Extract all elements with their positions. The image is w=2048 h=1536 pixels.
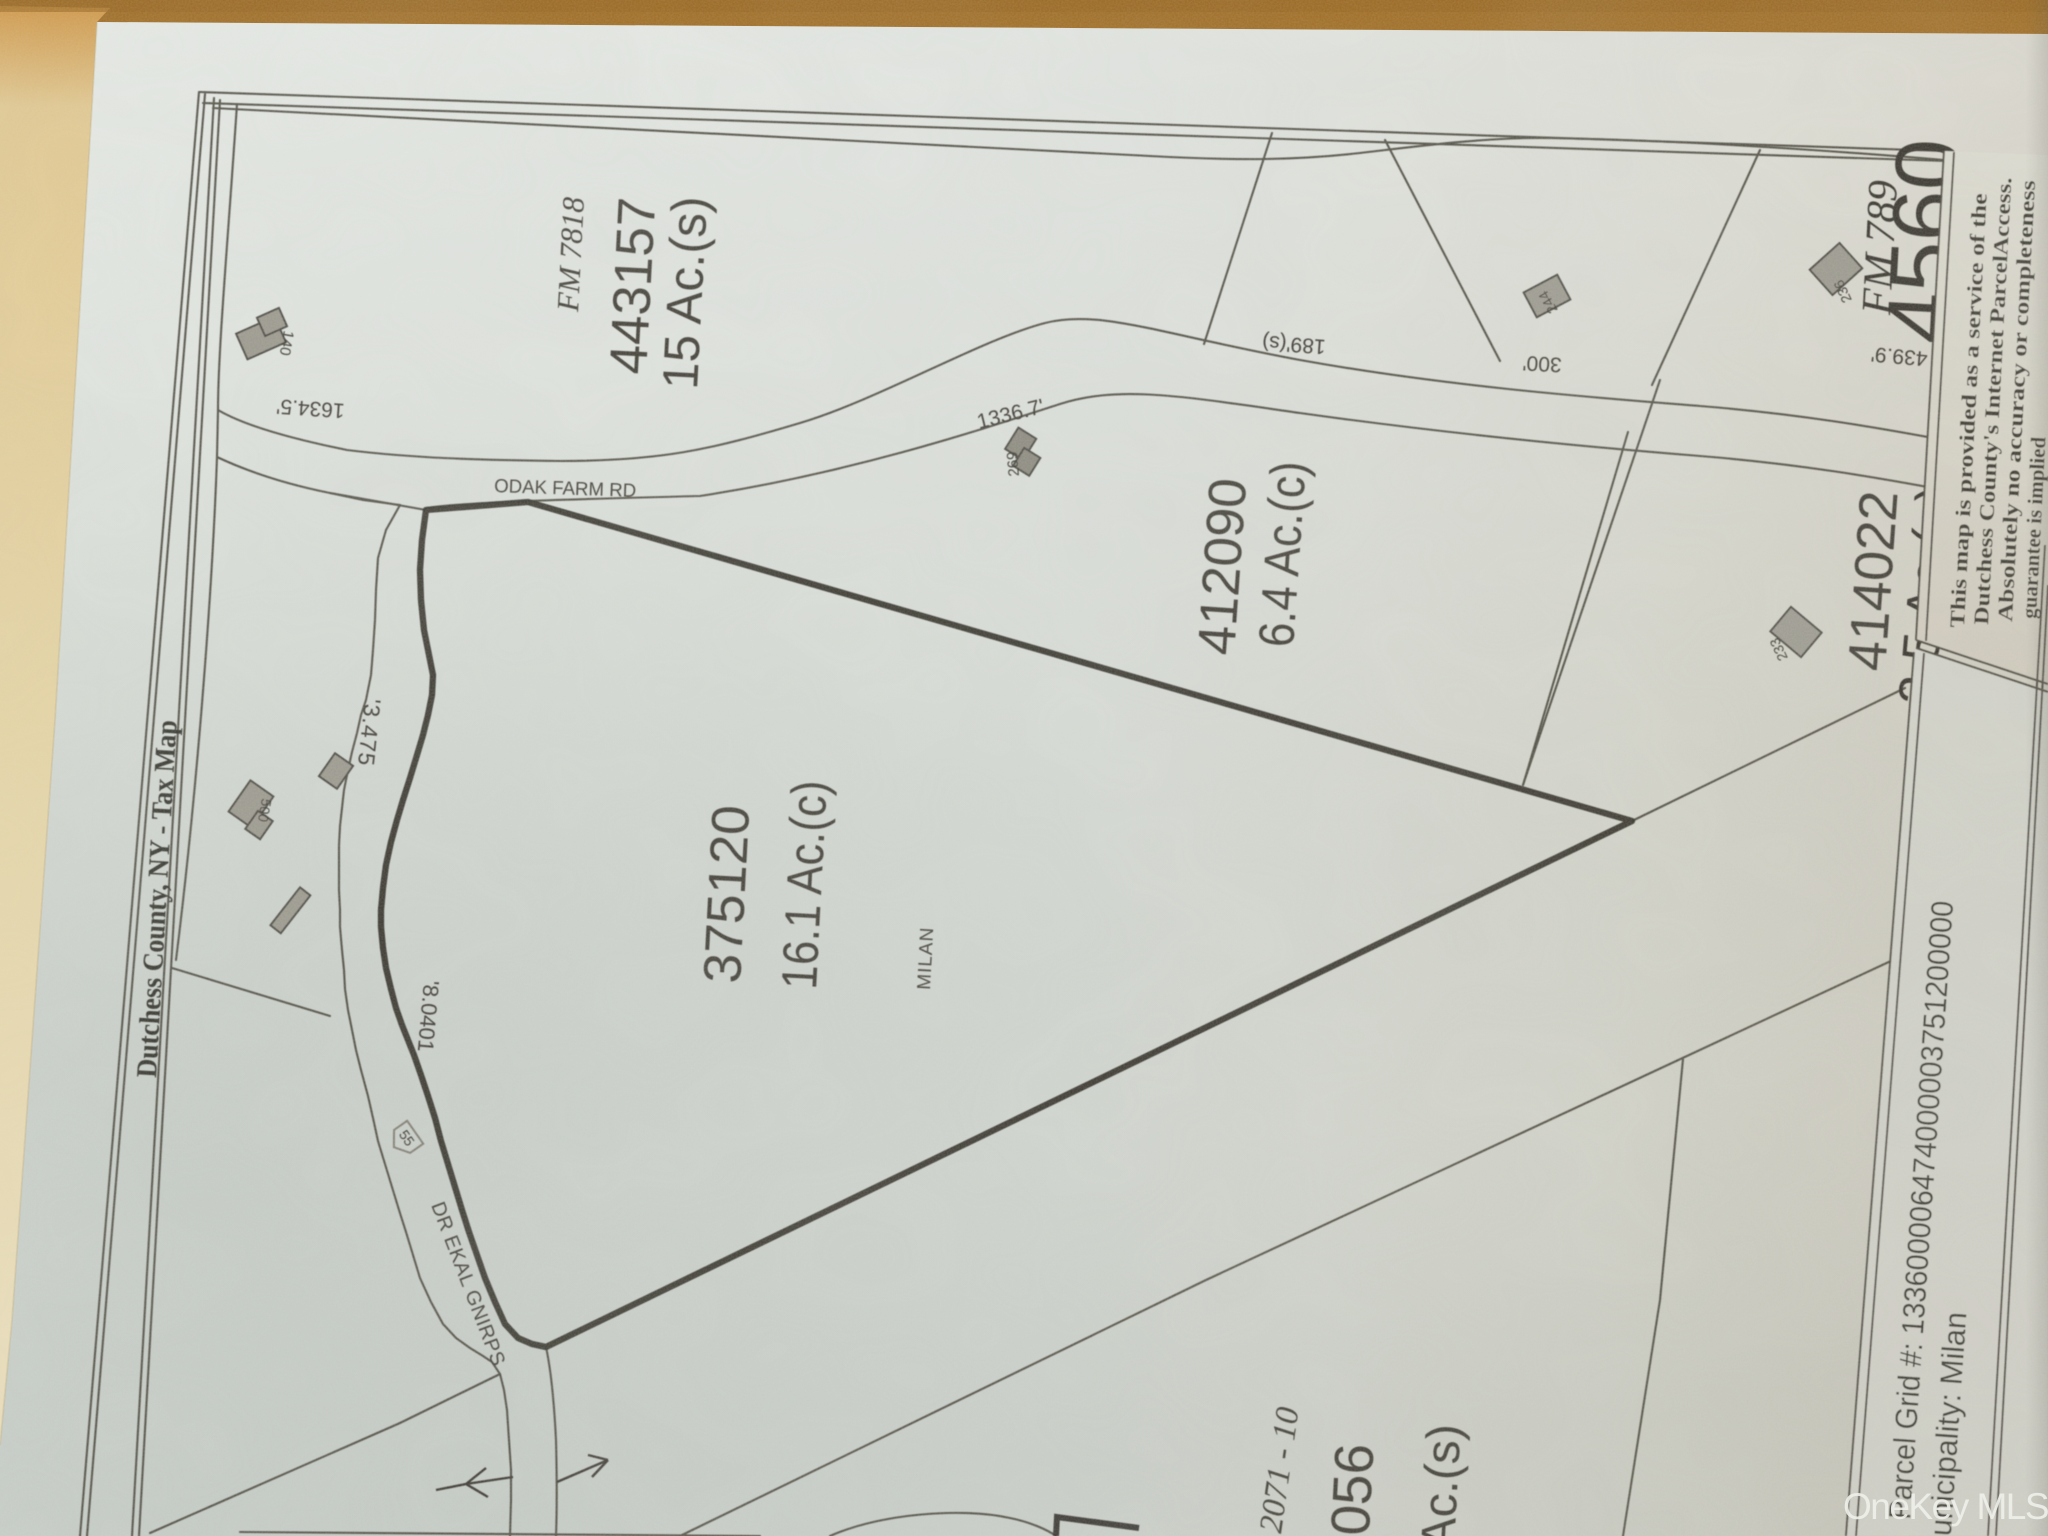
svg-text:OneKey MLS: OneKey MLS [1843,1486,2048,1527]
